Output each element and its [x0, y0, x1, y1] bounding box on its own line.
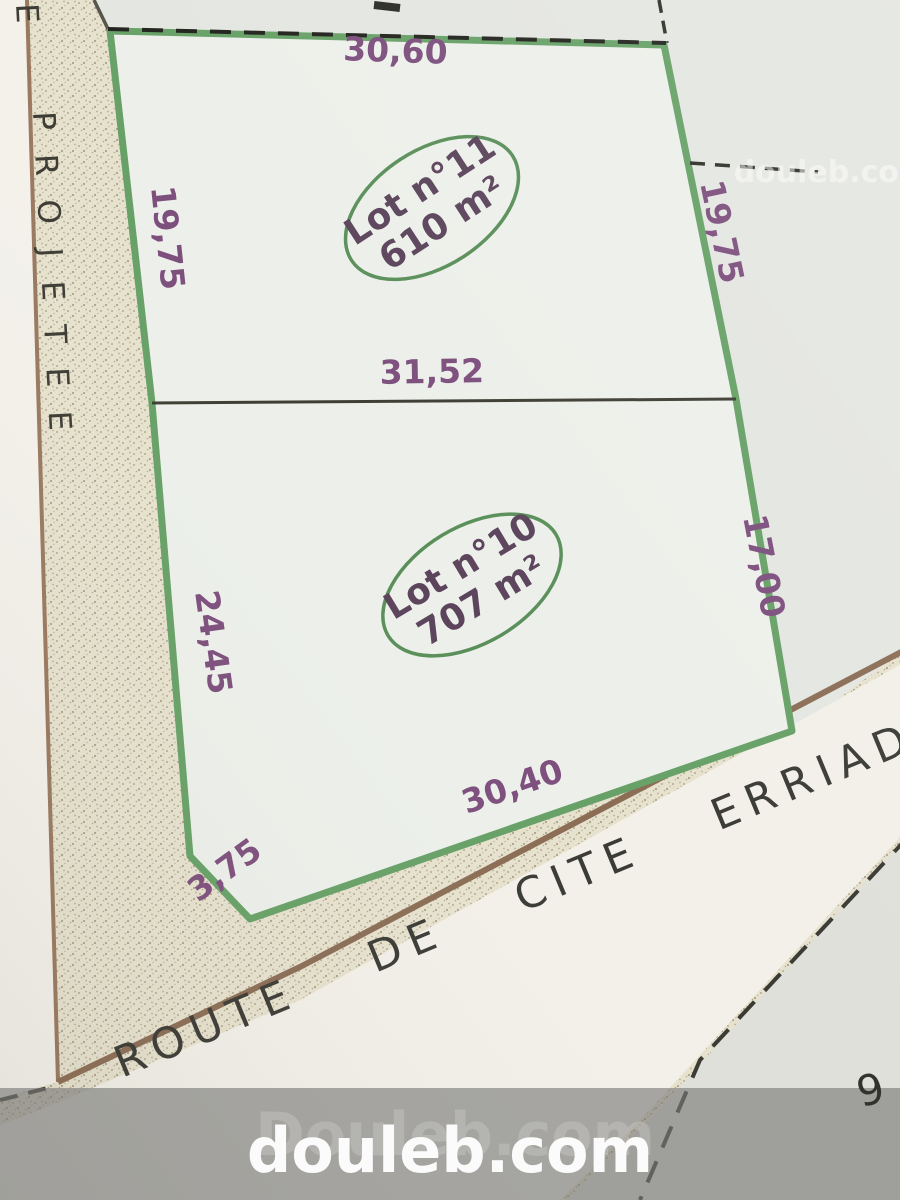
cadastral-plan-photo: Lot n°11 610 m² Lot n°10 707 m² 30,60 19… — [0, 0, 900, 1200]
banner-watermark: douleb.com — [247, 1114, 653, 1187]
plan-svg: Lot n°11 610 m² Lot n°10 707 m² 30,60 19… — [0, 0, 900, 1200]
photo-lighting-overlay — [0, 0, 900, 1200]
